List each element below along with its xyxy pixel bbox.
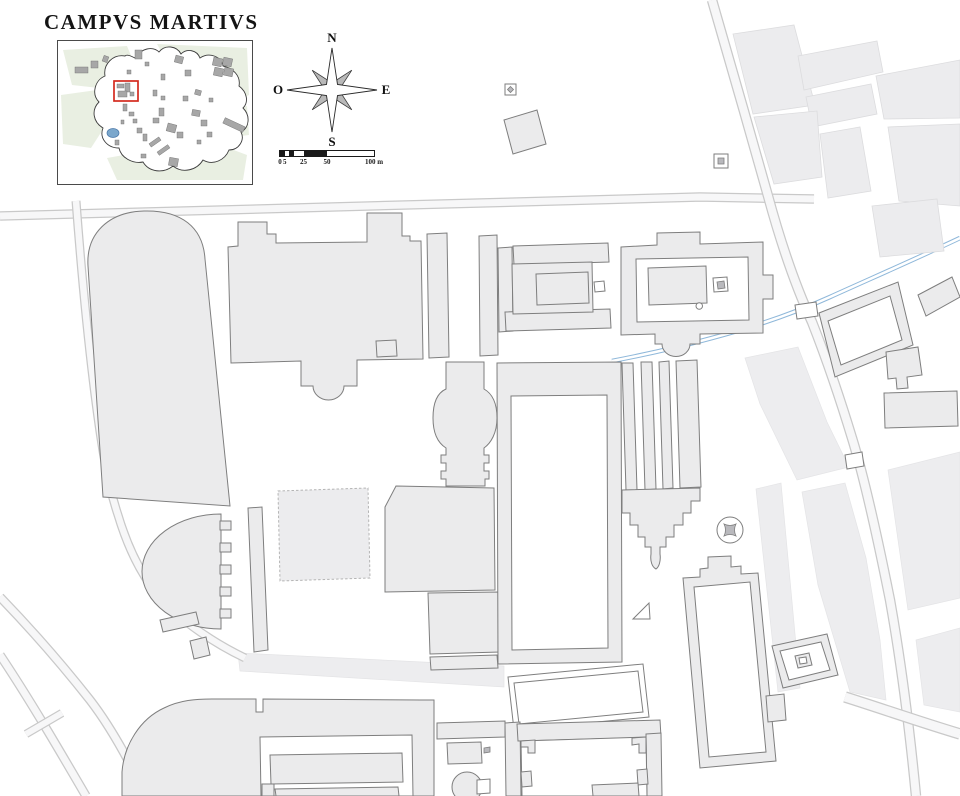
baths-room-small xyxy=(262,784,274,796)
city-block-ne-7 xyxy=(888,124,960,206)
scale-segment-5 xyxy=(304,151,328,156)
scale-tick-100: 100 m xyxy=(365,158,383,166)
map-title: CAMPVS MARTIVS xyxy=(44,10,259,35)
east-temple-cella xyxy=(648,266,707,305)
west-precinct-altar xyxy=(594,281,605,292)
east-precinct-well xyxy=(696,303,703,310)
portico-strip-west xyxy=(427,233,449,358)
west-precinct-top-bar xyxy=(513,243,609,265)
saepta-courtyard xyxy=(511,395,608,650)
tilted-building-far-east xyxy=(918,277,960,316)
compass-rose: N O E S xyxy=(270,28,394,154)
small-dash-mark xyxy=(484,747,490,753)
scale-bar-segments xyxy=(279,150,375,157)
aqueduct-pier-strip-2 xyxy=(641,362,656,490)
compass-label-west: O xyxy=(273,82,283,97)
large-square-building-south-wing xyxy=(428,592,500,654)
scale-segment-6 xyxy=(327,151,374,156)
small-marker-monument-ne-core xyxy=(718,158,724,164)
scale-bar: 052550100 m xyxy=(279,150,389,172)
light-block-east-4 xyxy=(916,628,960,712)
ruin-outline-square xyxy=(278,488,370,581)
portico-strip-east xyxy=(479,235,498,356)
road-gate-south xyxy=(845,452,864,469)
inset-overview-svg xyxy=(57,40,253,185)
scale-segment-4 xyxy=(294,151,303,156)
rotunda-corridor-building xyxy=(433,362,497,486)
city-block-ne-6 xyxy=(876,60,960,119)
ustrinum-enclosure-tab xyxy=(766,694,786,722)
south-enclosure-west-rotunda-notch xyxy=(477,779,490,794)
stadium-building xyxy=(88,211,230,506)
scale-tick-50: 50 xyxy=(324,158,331,166)
inset-frame-border xyxy=(58,41,253,185)
central-bath-complex xyxy=(228,213,423,400)
long-thin-portico-bar xyxy=(248,507,268,652)
theater-cavea xyxy=(142,514,221,629)
city-block-ne-8 xyxy=(872,199,944,257)
south-enclosure-west-room xyxy=(447,742,482,764)
aqueduct-pier-strip-3 xyxy=(659,361,673,489)
city-block-ne-2 xyxy=(798,41,883,90)
stepped-monument xyxy=(622,488,700,569)
small-tilted-enclosure-altar-core xyxy=(799,657,807,664)
compass-label-east: E xyxy=(382,82,391,97)
tilted-bar-building-2 xyxy=(190,637,210,659)
south-enclosure-tab-w xyxy=(521,771,532,787)
theater-stair-tooth-4 xyxy=(220,587,231,596)
large-square-building xyxy=(385,486,495,592)
triangle-monument xyxy=(633,603,650,619)
compass-label-south: S xyxy=(328,134,335,149)
east-precinct-altar-core xyxy=(717,281,725,289)
long-building-east xyxy=(884,391,958,428)
theater-stair-tooth-1 xyxy=(220,521,231,530)
compass-label-north: N xyxy=(327,30,337,45)
west-temple-cella xyxy=(536,272,589,305)
scale-tick-25: 25 xyxy=(300,158,307,166)
south-enclosure-room xyxy=(592,783,639,796)
column-monument-shaft xyxy=(724,524,736,536)
compass-cardinal-points xyxy=(287,48,377,132)
wall-bar-below-south-wing xyxy=(430,655,498,670)
city-block-ne-5 xyxy=(820,127,871,198)
small-square-building xyxy=(376,340,397,357)
aqueduct-pier-strip-1 xyxy=(622,363,637,490)
scale-tick-0: 0 xyxy=(278,158,282,166)
baths-hall-2 xyxy=(275,787,399,796)
scale-tick-5: 5 xyxy=(283,158,287,166)
south-enclosure-tab-e xyxy=(637,769,648,785)
notched-building-east xyxy=(886,347,922,389)
baths-hall-1 xyxy=(270,753,403,784)
aqueduct-pier-strip-4 xyxy=(676,360,701,488)
south-enclosure-right-wall xyxy=(646,733,662,796)
theater-stair-tooth-5 xyxy=(220,609,231,618)
theater-stair-tooth-3 xyxy=(220,565,231,574)
light-block-east-3 xyxy=(888,452,960,610)
tilted-square-monument xyxy=(504,110,546,154)
south-enclosure-west-topbar xyxy=(437,721,505,739)
inset-overview-map xyxy=(57,40,253,185)
theater-stair-tooth-2 xyxy=(220,543,231,552)
road-gate-north xyxy=(795,302,818,319)
road-main-east-west xyxy=(0,197,814,216)
